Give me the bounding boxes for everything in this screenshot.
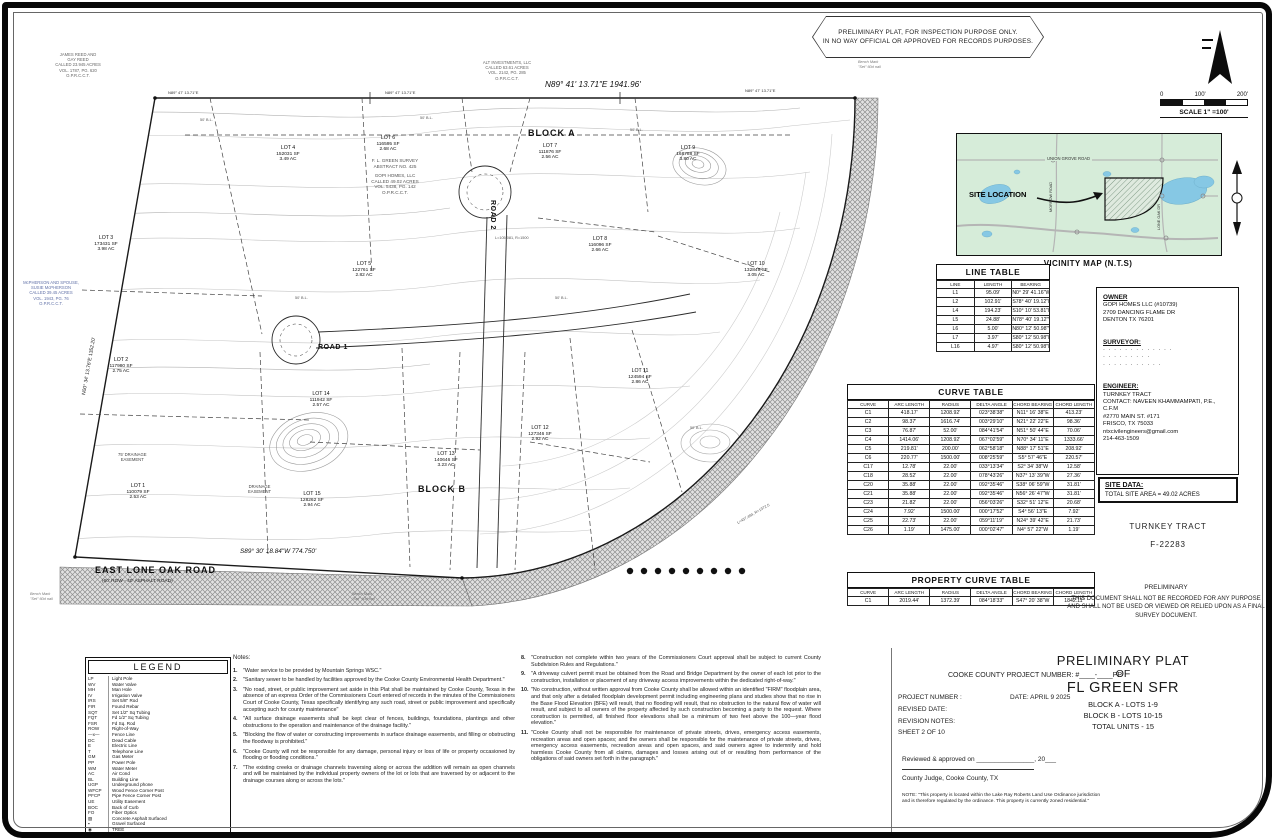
lot-label-11: LOT 11124594 SF2.86 AC: [614, 369, 666, 386]
sheet-label: SHEET 2 OF 10: [898, 729, 945, 736]
building-line-label: 50' B.L.: [690, 426, 703, 430]
boundary-corner-markers: [73, 96, 857, 580]
bench-mark-note: Bench Mark"Set" 60d nail: [30, 592, 53, 601]
road-2-label: ROAD 2: [489, 200, 496, 230]
surveyor-line: · · · · · · · · · · ·: [1103, 362, 1232, 369]
legend-box: LEGEND LPLight PoleWVWater ValveMHMan Ho…: [85, 657, 231, 837]
engineer-line: 214-463-1509: [1103, 436, 1232, 443]
block-a-label: BLOCK A: [528, 128, 576, 138]
notes-heading: Notes:: [233, 655, 515, 662]
revision-notes-label: REVISION NOTES:: [898, 718, 955, 725]
curve-table-title: CURVE TABLE: [847, 384, 1095, 400]
surveyor-heading: SURVEYOR:: [1103, 339, 1232, 346]
lot-label-10: LOT 10132849 SF3.05 AC: [730, 262, 782, 279]
legend-items: LPLight PoleWVWater ValveMHMan HoleIVIrr…: [88, 676, 228, 838]
building-line-label: 50' B.L.: [555, 296, 568, 300]
owner-called-line: O.P.R.C.C.T.: [340, 190, 450, 196]
lot-label-2: LOT 2117980 SF2.75 AC: [95, 358, 147, 375]
property-curve-table-title: PROPERTY CURVE TABLE: [847, 572, 1095, 588]
revised-date-label: REVISED DATE:: [898, 706, 947, 713]
site-data-heading: SITE DATA:: [1105, 482, 1231, 489]
county-judge-line: County Judge, Cooke County, TX: [902, 775, 998, 782]
bearing-bottom: S89° 30' 18.84"W 774.750': [240, 548, 316, 555]
building-line-label: 50' B.L.: [200, 118, 213, 122]
sheet-title-line-3: FL GREEN SFR: [1008, 680, 1238, 696]
sheet-title-line-1: PRELIMINARY PLAT: [1008, 653, 1238, 668]
preliminary-disclaimer: PRELIMINARY THIS DOCUMENT SHALL NOT BE R…: [1066, 584, 1266, 620]
road-1-label: ROAD 1: [318, 344, 348, 351]
adjacent-owner-northwest: JAMES REED ANDGAY REED CALLED 23.945 ACR…: [38, 52, 118, 78]
curve-callout: L=105.081, R=1500: [495, 236, 529, 240]
bearing-top-seg-3: N89° 47' 13.71"E: [745, 88, 775, 93]
site-location-shape: [1105, 178, 1163, 220]
curve-table: CURVE TABLE CURVEARC LENGTHRADIUSDELTA A…: [847, 384, 1095, 535]
building-line-label: 50' B.L.: [420, 116, 433, 120]
engineer-line: TURNKEY TRACT: [1103, 392, 1232, 399]
engineer-line: CONTACT: NAVEEN KHAMMAMPATI, P.E., C.F.M: [1103, 399, 1232, 414]
lot-label-8: LOT 8116096 SF2.66 AC: [574, 237, 626, 254]
engineer-heading: ENGINEER:: [1103, 383, 1232, 390]
signature-line: [902, 769, 1034, 770]
ordinance-note: NOTE: "This property is located within t…: [902, 793, 1100, 805]
bench-mark-note: Bench Mark"Set" 60d nail: [858, 60, 881, 69]
legend-title: LEGEND: [88, 660, 228, 674]
bearing-top-seg-2: N89° 47' 13.71"E: [385, 90, 415, 95]
building-line-label: 50' B.L.: [630, 128, 643, 132]
block-b-lots-line: BLOCK B - LOTS 10-15: [1008, 711, 1238, 720]
lot-label-13: LOT 13140646 SF3.23 AC: [420, 452, 472, 469]
notes-list-1: 1."Water service to be provided by Mount…: [233, 668, 515, 785]
owner-line: DENTON TX 76201: [1103, 317, 1232, 324]
building-line-label: 50' B.L.: [295, 296, 308, 300]
survey-abstract-label: F. L. GREEN SURVEY ABSTRACT NO. 425 GOPI…: [340, 158, 450, 196]
lot-label-9: LOT 9168788 SF3.80 AC: [662, 146, 714, 163]
lot-label-3: LOT 3173431 SF3.98 AC: [80, 236, 132, 253]
sheet-title-line-2: OF: [1008, 668, 1238, 680]
notes-column-2: 8."Construction not complete within two …: [521, 655, 821, 766]
road-hatch-bands: [60, 98, 878, 606]
line-table-title: LINE TABLE: [936, 264, 1050, 280]
engineer-line: FRISCO, TX 75033: [1103, 421, 1232, 428]
bench-mark-note: Bench Mark"Set" 60d nail: [352, 592, 375, 601]
firm-number: F-22283: [1098, 540, 1238, 549]
lot-label-4: LOT 4152031 SF3.49 AC: [262, 146, 314, 163]
scale-tick-200: 200': [1237, 92, 1248, 98]
reviewed-approved-line: Reviewed & approved on ________________,…: [902, 756, 1056, 763]
firm-name: TURNKEY TRACT: [1098, 522, 1238, 531]
lot-label-7: LOT 7111876 SF2.56 AC: [524, 144, 576, 161]
east-lone-oak-road-label: EAST LONE OAK ROAD: [95, 565, 216, 575]
lot-label-1: LOT 1110079 SF2.53 AC: [112, 484, 164, 501]
site-area-line: TOTAL SITE AREA = 49.02 ACRES: [1105, 492, 1231, 498]
union-grove-road-label: UNION GROVE ROAD: [1045, 156, 1092, 161]
lot-label-6: LOT 6116595 SF2.68 AC: [362, 136, 414, 153]
preliminary-title: PRELIMINARY: [1066, 584, 1266, 593]
lot-label-15: LOT 15128262 SF2.94 AC: [286, 492, 338, 509]
bearing-top-seg-1: N89° 47' 13.71"E: [168, 90, 198, 95]
property-curve-table-grid: CURVEARC LENGTHRADIUSDELTA ANGLECHORD BE…: [847, 588, 1095, 606]
bearing-top: N89° 41' 13.71"E 1941.96': [545, 80, 641, 89]
owner-line: GOPI HOMES LLC (#10739): [1103, 302, 1232, 309]
owner-heading: OWNER: [1103, 294, 1232, 301]
vicinity-north-arrow-icon: [1228, 160, 1246, 236]
project-number-label: PROJECT NUMBER :: [898, 694, 962, 701]
block-b-label: BLOCK B: [418, 484, 466, 494]
title-block-divider: [891, 648, 892, 834]
notes-column-1: Notes: 1."Water service to be provided b…: [233, 655, 515, 788]
surveyor-line: · · · · · · · · · · · · ·: [1103, 347, 1232, 354]
banner-line-1: PRELIMINARY PLAT, FOR INSPECTION PURPOSE…: [813, 28, 1043, 37]
site-location-label: SITE LOCATION: [969, 190, 1026, 199]
drainage-easement-75-label: 75' DRAINAGEEASEMENT: [118, 452, 147, 462]
preliminary-banner: PRELIMINARY PLAT, FOR INSPECTION PURPOSE…: [812, 16, 1044, 58]
east-lone-oak-road-sub: (60' ROW - 40' ASPHALT ROAD): [102, 579, 173, 584]
preliminary-body: THIS DOCUMENT SHALL NOT BE RECORDED FOR …: [1066, 595, 1266, 621]
vicinity-map: UNION GROVE ROAD MORROW ROAD LONE OAK DR…: [956, 133, 1222, 256]
site-data-box: SITE DATA: TOTAL SITE AREA = 49.02 ACRES: [1098, 477, 1238, 503]
surveyor-line: · · · · · · · · ·: [1103, 354, 1232, 361]
matchline-dots: [627, 568, 745, 574]
banner-line-2: IN NO WAY OFFICIAL OR APPROVED FOR RECOR…: [813, 37, 1043, 46]
adjacent-owner-west: McPHERSON AND SPOUSE,SUSIE McPHERSON CAL…: [16, 280, 86, 306]
owner-surveyor-engineer-box: OWNER GOPI HOMES LLC (#10739) 2709 DANCI…: [1096, 287, 1239, 475]
lot-label-5: LOT 5122761 SF2.82 AC: [338, 262, 390, 279]
plat-drawing: [10, 22, 915, 647]
line-table-grid: LINELENGTHBEARINGL195.09'N0° 29' 41.16"W…: [936, 280, 1050, 352]
property-boundary: [75, 98, 855, 578]
lot-label-12: LOT 12127346 SF2.92 AC: [514, 426, 566, 443]
line-table: LINE TABLE LINELENGTHBEARINGL195.09'N0° …: [936, 264, 1050, 352]
notes-list-2: 8."Construction not complete within two …: [521, 655, 821, 763]
adjacent-owner-north: ALT INVESTMENTS, LLCCALLED 63.61 ACRES V…: [462, 60, 552, 81]
property-curve-table: PROPERTY CURVE TABLE CURVEARC LENGTHRADI…: [847, 572, 1095, 606]
block-a-lots-line: BLOCK A - LOTS 1-9: [1008, 700, 1238, 709]
scale-label: SCALE 1" =100': [1160, 109, 1248, 118]
lot-label-14: LOT 14111942 SF2.57 AC: [295, 392, 347, 409]
total-units-line: TOTAL UNITS - 15: [1008, 722, 1238, 731]
morrow-road-label: MORROW ROAD: [1049, 180, 1053, 214]
scale-tick-100: 100': [1195, 92, 1206, 98]
scale-tick-0: 0: [1160, 92, 1163, 98]
engineer-line: ntxcivilengineers@gmail.com: [1103, 429, 1232, 436]
lone-oak-road-label: LONE OAK DR: [1157, 202, 1161, 232]
drainage-easement-label: DRAINAGEEASEMENT: [248, 484, 271, 494]
scale-bar: 0 100' 200' SCALE 1" =100': [1160, 92, 1248, 118]
scale-bar-segments: [1160, 99, 1248, 106]
owner-line: 2709 DANCING FLAME DR: [1103, 310, 1232, 317]
curve-table-grid: CURVEARC LENGTHRADIUSDELTA ANGLECHORD BE…: [847, 400, 1095, 535]
engineer-line: #2770 MAIN ST. #171: [1103, 414, 1232, 421]
sheet-title: PRELIMINARY PLAT OF FL GREEN SFR BLOCK A…: [1008, 653, 1238, 731]
north-arrow-icon: [1198, 28, 1242, 92]
